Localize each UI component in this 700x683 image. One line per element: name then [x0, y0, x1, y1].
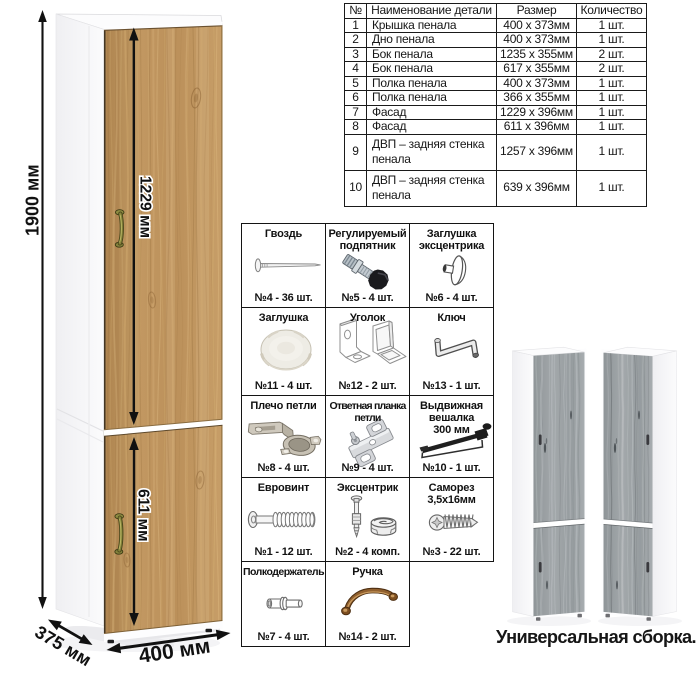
- svg-text:1900 мм: 1900 мм: [23, 164, 43, 236]
- svg-text:1229 мм: 1229 мм: [137, 176, 154, 238]
- svg-text:611 мм: 611 мм: [135, 489, 152, 542]
